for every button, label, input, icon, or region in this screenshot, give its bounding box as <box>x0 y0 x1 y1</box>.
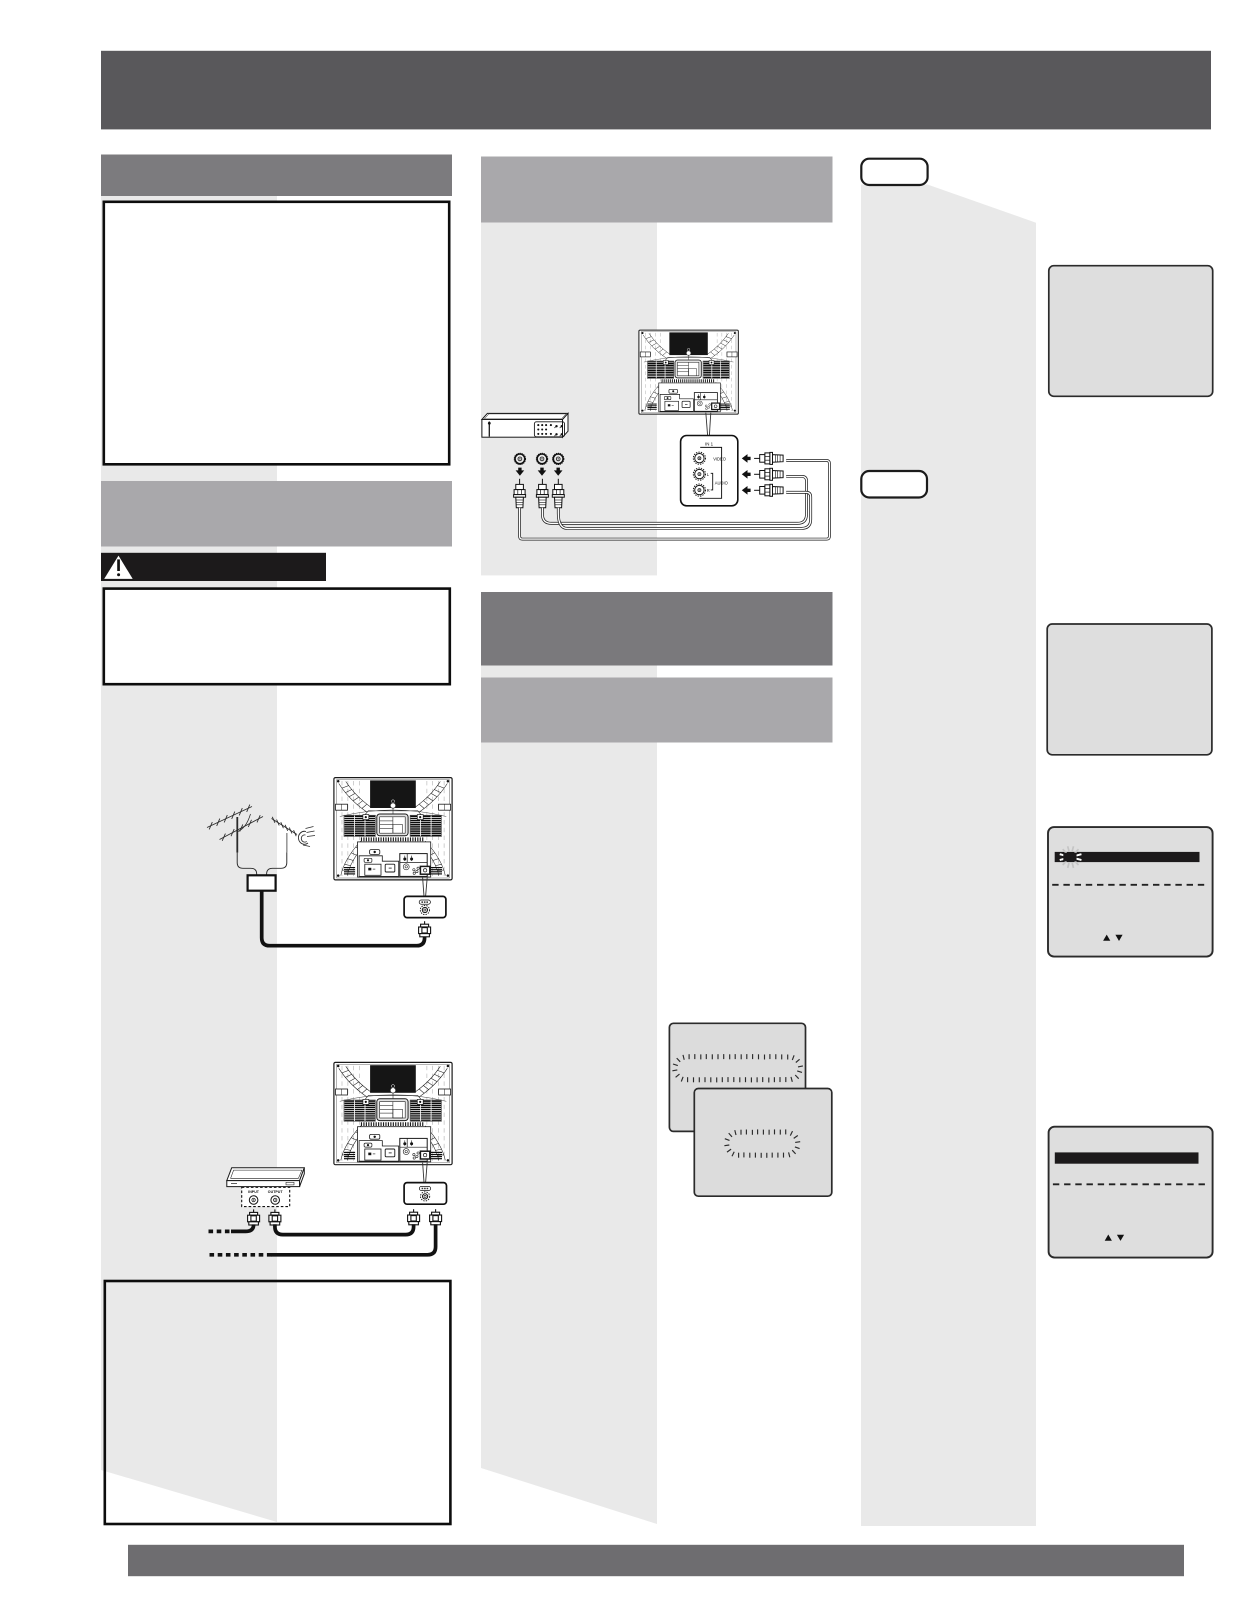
svg-text:VIDEO: VIDEO <box>713 456 726 461</box>
svg-text:INPUT: INPUT <box>248 1190 260 1194</box>
svg-text:AUDIO: AUDIO <box>715 480 728 485</box>
svg-text:OUTPUT: OUTPUT <box>268 1190 284 1194</box>
svg-text:IN 1: IN 1 <box>705 442 714 447</box>
svg-text:R: R <box>707 488 710 493</box>
